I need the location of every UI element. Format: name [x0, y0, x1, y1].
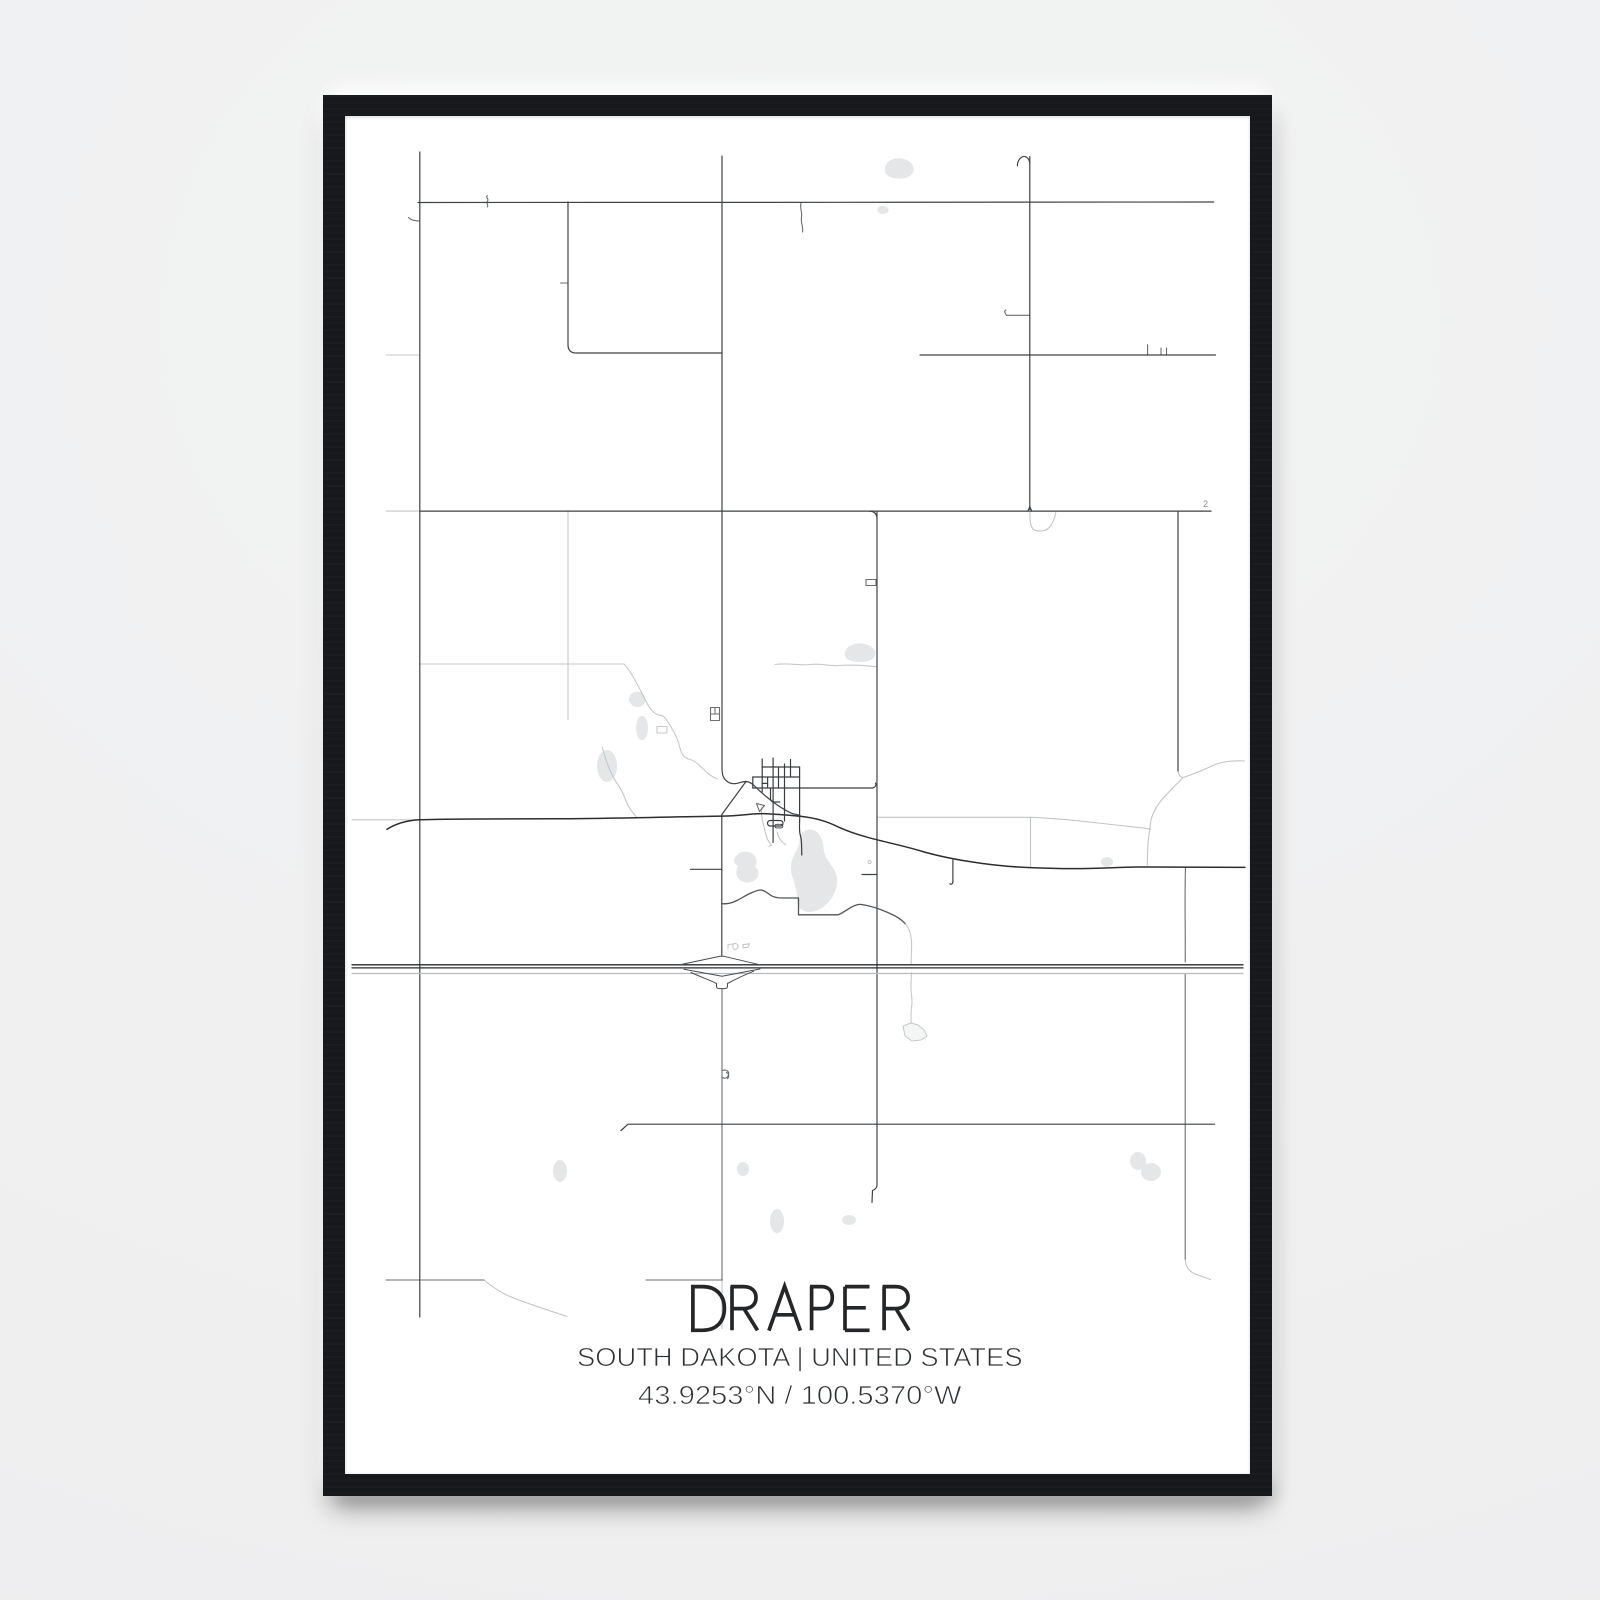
- svg-text:SOUTH DAKOTA | UNITED STATES: SOUTH DAKOTA | UNITED STATES: [577, 1342, 1023, 1372]
- svg-text:2: 2: [1203, 499, 1208, 509]
- svg-text:43.9253°N / 100.5370°W: 43.9253°N / 100.5370°W: [638, 1380, 962, 1410]
